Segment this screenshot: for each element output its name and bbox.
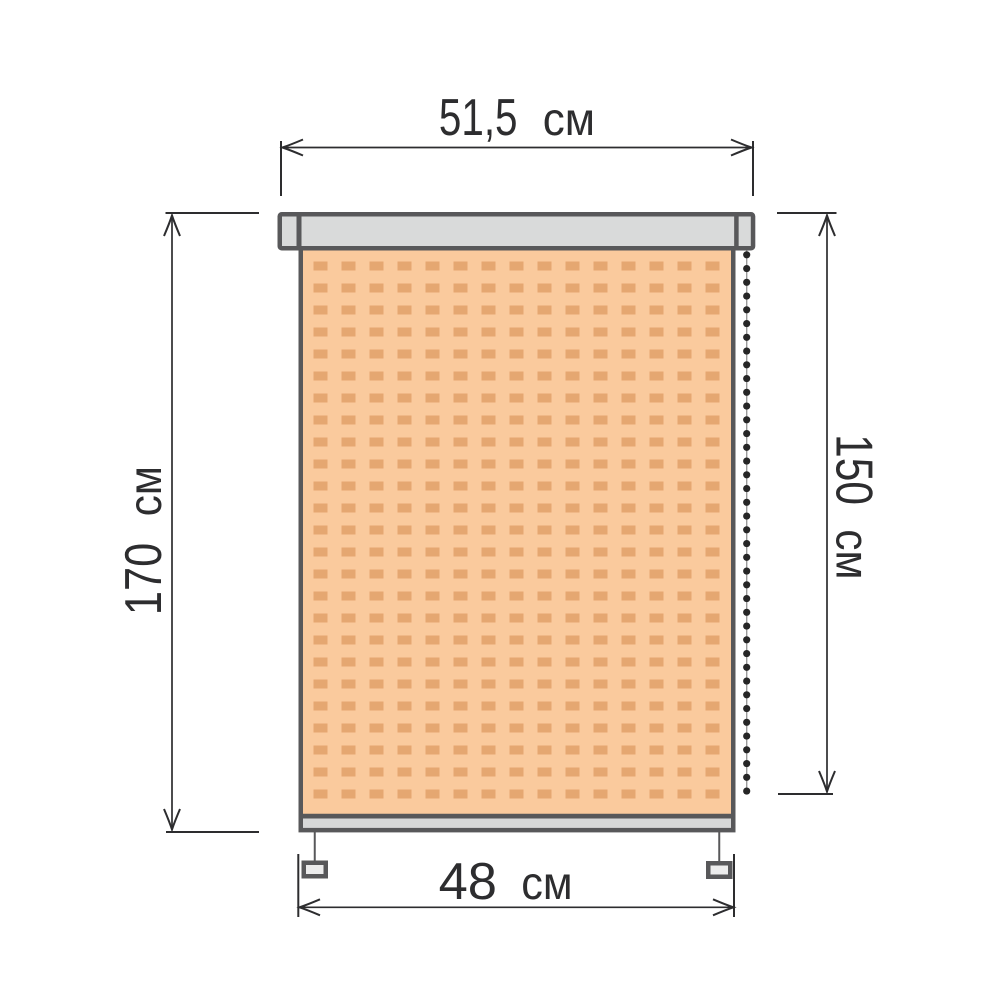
svg-text:150: 150 bbox=[825, 434, 883, 505]
svg-text:см: см bbox=[521, 859, 572, 909]
svg-text:см: см bbox=[543, 93, 595, 145]
svg-text:170: 170 bbox=[116, 543, 173, 615]
svg-text:48: 48 bbox=[439, 853, 497, 910]
svg-text:см: см bbox=[826, 529, 877, 579]
svg-text:см: см bbox=[120, 466, 171, 516]
svg-text:51,5: 51,5 bbox=[439, 88, 518, 146]
